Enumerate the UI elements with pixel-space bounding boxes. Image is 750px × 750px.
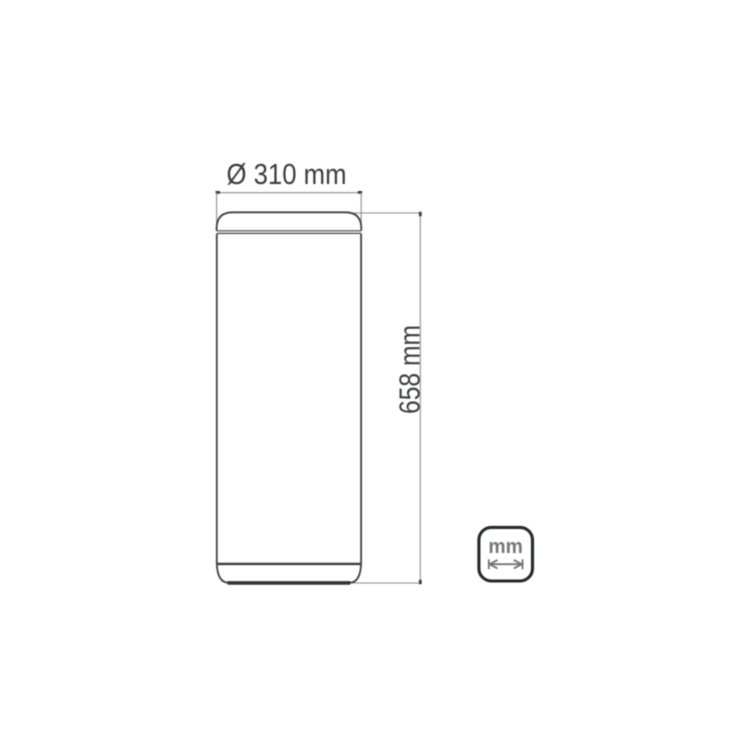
svg-text:mm: mm [488, 535, 523, 558]
svg-text:658 mm: 658 mm [394, 325, 426, 414]
svg-text:Ø 310 mm: Ø 310 mm [227, 159, 347, 191]
